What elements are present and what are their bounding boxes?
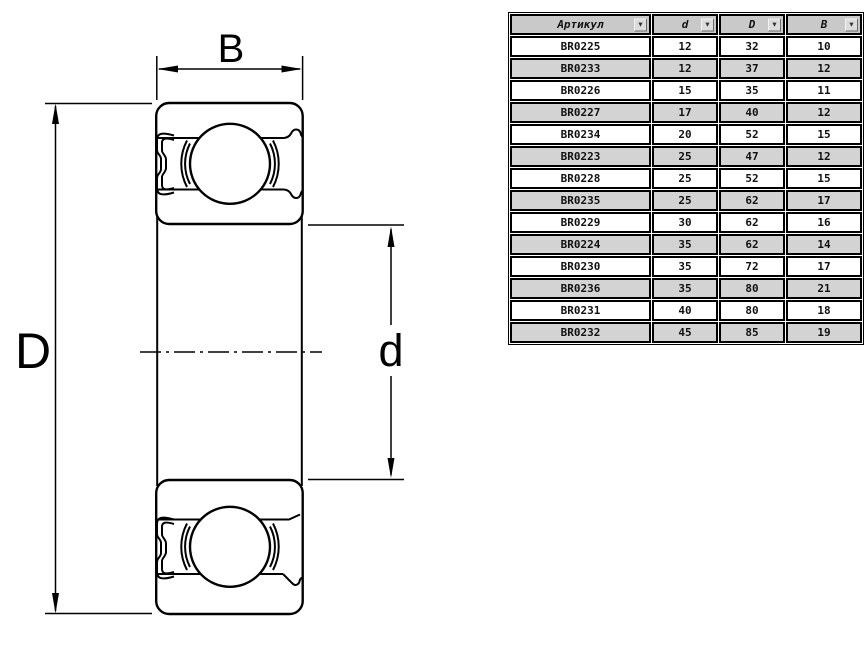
cell-B: 16 [786, 212, 862, 233]
cell-d: 25 [652, 190, 718, 211]
arrowhead-down [388, 458, 395, 478]
cell-d: 30 [652, 212, 718, 233]
cell-B: 12 [786, 102, 862, 123]
cell-D: 52 [719, 168, 785, 189]
cell-D: 35 [719, 80, 785, 101]
cell-article: BR0235 [510, 190, 651, 211]
bearing-spec-table: Артикул▼d▼D▼B▼ BR0225123210BR0233123712B… [508, 12, 864, 345]
column-label-D: D [749, 18, 756, 31]
column-label-d: d [682, 18, 689, 31]
cell-d: 45 [652, 322, 718, 343]
cell-article: BR0234 [510, 124, 651, 145]
bore-lines [157, 216, 302, 486]
cell-B: 17 [786, 190, 862, 211]
column-header-d: d▼ [652, 14, 718, 35]
cell-d: 25 [652, 146, 718, 167]
cell-D: 47 [719, 146, 785, 167]
cell-article: BR0236 [510, 278, 651, 299]
bearing-section-bottom [156, 480, 303, 614]
cell-D: 85 [719, 322, 785, 343]
bearing-section-top [156, 103, 303, 224]
filter-dropdown-button-d[interactable]: ▼ [701, 18, 714, 31]
cell-D: 32 [719, 36, 785, 57]
cell-d: 35 [652, 256, 718, 277]
cell-B: 12 [786, 146, 862, 167]
cell-d: 17 [652, 102, 718, 123]
cell-B: 19 [786, 322, 862, 343]
table-row: BR0227174012 [510, 102, 862, 123]
table-row: BR0223254712 [510, 146, 862, 167]
bearing-diagram: D B d [0, 0, 440, 650]
table-row: BR0229306216 [510, 212, 862, 233]
cell-B: 12 [786, 58, 862, 79]
cell-D: 80 [719, 300, 785, 321]
cell-B: 10 [786, 36, 862, 57]
table-row: BR0235256217 [510, 190, 862, 211]
table-row: BR0234205215 [510, 124, 862, 145]
filter-dropdown-button-D[interactable]: ▼ [768, 18, 781, 31]
cell-d: 20 [652, 124, 718, 145]
cell-B: 18 [786, 300, 862, 321]
cell-d: 40 [652, 300, 718, 321]
cell-D: 62 [719, 190, 785, 211]
column-header-article: Артикул▼ [510, 14, 651, 35]
dimension-B: B [157, 27, 303, 100]
cell-article: BR0229 [510, 212, 651, 233]
table-row: BR0231408018 [510, 300, 862, 321]
cell-B: 17 [786, 256, 862, 277]
ball-top [190, 124, 270, 204]
table-row: BR0224356214 [510, 234, 862, 255]
arrowhead-up [52, 104, 59, 125]
table-row: BR0236358021 [510, 278, 862, 299]
cell-B: 14 [786, 234, 862, 255]
table-row: BR0226153511 [510, 80, 862, 101]
cell-B: 15 [786, 168, 862, 189]
dimension-d: d [308, 225, 404, 480]
cell-D: 37 [719, 58, 785, 79]
cell-D: 80 [719, 278, 785, 299]
cell-D: 72 [719, 256, 785, 277]
filter-dropdown-button-B[interactable]: ▼ [845, 18, 858, 31]
cell-article: BR0226 [510, 80, 651, 101]
table-row: BR0230357217 [510, 256, 862, 277]
cell-article: BR0233 [510, 58, 651, 79]
cell-d: 25 [652, 168, 718, 189]
cell-d: 12 [652, 58, 718, 79]
cell-B: 15 [786, 124, 862, 145]
cell-d: 12 [652, 36, 718, 57]
table-header-row: Артикул▼d▼D▼B▼ [510, 14, 862, 35]
cell-article: BR0228 [510, 168, 651, 189]
arrowhead-down [52, 593, 59, 614]
cell-D: 62 [719, 212, 785, 233]
arrowhead-right [282, 66, 303, 73]
dimension-label-d: d [378, 325, 403, 376]
page: D B d [0, 0, 868, 650]
cell-article: BR0224 [510, 234, 651, 255]
cell-D: 52 [719, 124, 785, 145]
dimension-D: D [15, 104, 152, 614]
cell-article: BR0231 [510, 300, 651, 321]
table-row: BR0232458519 [510, 322, 862, 343]
cell-article: BR0232 [510, 322, 651, 343]
arrowhead-left [158, 66, 179, 73]
cell-article: BR0230 [510, 256, 651, 277]
dimension-label-B: B [218, 27, 245, 71]
cell-d: 35 [652, 278, 718, 299]
cell-D: 40 [719, 102, 785, 123]
filter-dropdown-button-article[interactable]: ▼ [634, 18, 647, 31]
arrowhead-up [388, 227, 395, 248]
column-header-D: D▼ [719, 14, 785, 35]
cell-D: 62 [719, 234, 785, 255]
cell-d: 15 [652, 80, 718, 101]
table-row: BR0225123210 [510, 36, 862, 57]
dimension-label-D: D [15, 323, 51, 379]
cell-article: BR0225 [510, 36, 651, 57]
column-label-B: B [821, 18, 828, 31]
table-row: BR0228255215 [510, 168, 862, 189]
ball-bottom [190, 507, 270, 587]
cell-B: 21 [786, 278, 862, 299]
column-header-B: B▼ [786, 14, 862, 35]
cell-article: BR0223 [510, 146, 651, 167]
cell-article: BR0227 [510, 102, 651, 123]
column-label-article: Артикул [557, 18, 603, 31]
table-row: BR0233123712 [510, 58, 862, 79]
cell-B: 11 [786, 80, 862, 101]
cell-d: 35 [652, 234, 718, 255]
